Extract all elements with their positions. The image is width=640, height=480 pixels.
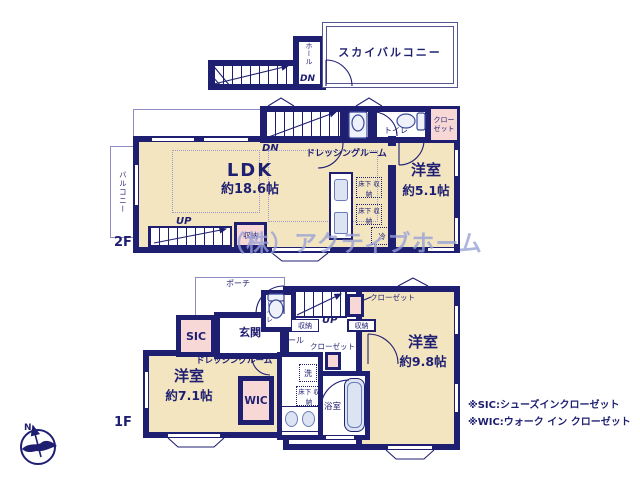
window xyxy=(326,435,354,440)
f2-stairs-up xyxy=(148,226,232,247)
f1-wic: WIC xyxy=(238,376,274,425)
basin-sink-icon xyxy=(285,411,298,427)
ldk-size-label: 約18.6帖 xyxy=(205,183,295,197)
genkan-label: 玄関 xyxy=(222,327,278,340)
f2-floor-label: 2F xyxy=(114,236,132,251)
f1-storage-b: 収納 xyxy=(347,319,376,332)
window xyxy=(204,137,248,142)
f2-toilet-room xyxy=(371,106,431,143)
f2-toilet-label: トイレ xyxy=(384,126,408,135)
gable-mark xyxy=(398,278,428,286)
f1-sic: SIC xyxy=(176,315,216,357)
gable-mark xyxy=(268,98,294,106)
f2-room-label: 洋室 xyxy=(400,163,452,179)
kitchen-sink-icon xyxy=(334,179,348,201)
window xyxy=(454,384,459,412)
f1-closet-b-label: クローゼット xyxy=(310,343,355,352)
compass-bird-icon xyxy=(22,441,57,452)
f1-room2-label: 洋室 xyxy=(166,369,212,385)
window xyxy=(454,306,459,334)
note-sic: ※SIC:シューズインクローゼット xyxy=(468,400,619,412)
f2-room-size-label: 約5.1帖 xyxy=(398,185,454,198)
f2-closet-label: クロー ゼット xyxy=(434,116,455,132)
window xyxy=(168,433,220,438)
floor-plan: ホール DN スカイバルコニー クロー ゼット トイレ DN バルコニー 床下 … xyxy=(0,0,640,480)
compass-n-label: N xyxy=(24,423,32,433)
compass: N xyxy=(21,423,57,464)
f1-underfloor-storage: 床下 収納 xyxy=(296,386,322,406)
f1-closet-a-label: クローゼット xyxy=(370,294,415,303)
f1-storage-a: 収納 xyxy=(291,319,319,332)
f1-closet-box-b xyxy=(325,352,341,370)
f1-washer-space: 洗 xyxy=(299,364,317,382)
f2-dressing-label: ドレッシングルーム xyxy=(306,149,387,159)
f2-underfloor-storage-1: 床下 収納 xyxy=(356,177,382,198)
basin-sink-icon xyxy=(302,411,315,427)
f2-closet: クロー ゼット xyxy=(428,106,460,143)
f1-dressing-label: ドレッシングルーム xyxy=(196,357,272,367)
wic-label: WIC xyxy=(244,395,267,407)
f2-roof-strip xyxy=(133,109,262,139)
f2-up-label: UP xyxy=(176,216,191,228)
porch-label: ポーチ xyxy=(216,279,260,289)
window xyxy=(152,137,194,142)
f1-up-label: UP xyxy=(322,315,337,327)
f2-washbasin-room xyxy=(343,106,374,143)
f1-room1-label: 洋室 xyxy=(400,335,446,351)
sky-balcony-label: スカイバルコニー xyxy=(330,45,450,61)
window xyxy=(454,150,459,176)
f2-wall-stub xyxy=(388,136,396,146)
f1-hall-label: ホール xyxy=(280,336,304,345)
bay-mark xyxy=(386,450,434,459)
f2-balcony-label: バルコニー xyxy=(114,156,130,228)
f1-closet-box-a xyxy=(347,294,364,317)
f2-underfloor-storage-2: 床下 収納 xyxy=(356,204,382,225)
gable-mark xyxy=(356,98,382,106)
ldk-label: LDK xyxy=(210,162,290,180)
watermark: （株）アクティブホーム xyxy=(222,224,502,258)
bath-label: 浴室 xyxy=(324,403,341,413)
note-wic: ※WIC:ウォーク イン クローゼット xyxy=(468,417,631,429)
f1-room2-size-label: 約7.1帖 xyxy=(160,390,218,403)
roof-dn-label: DN xyxy=(300,74,315,84)
f1-basin-counter xyxy=(281,406,319,432)
window xyxy=(144,372,149,408)
bathtub-icon xyxy=(344,378,365,432)
f2-stairs-dn xyxy=(260,106,346,143)
sic-label: SIC xyxy=(186,330,206,343)
f1-floor-label: 1F xyxy=(114,416,132,431)
roof-stairs xyxy=(208,60,300,90)
f1-stairs-up xyxy=(293,290,347,318)
roof-hall-label: ホール xyxy=(305,42,313,66)
window xyxy=(134,165,139,205)
bay-mark xyxy=(168,438,224,447)
f1-toilet-label: トイレ xyxy=(264,301,271,324)
window xyxy=(388,445,432,450)
f1-room1-size-label: 約9.8帖 xyxy=(396,356,450,369)
